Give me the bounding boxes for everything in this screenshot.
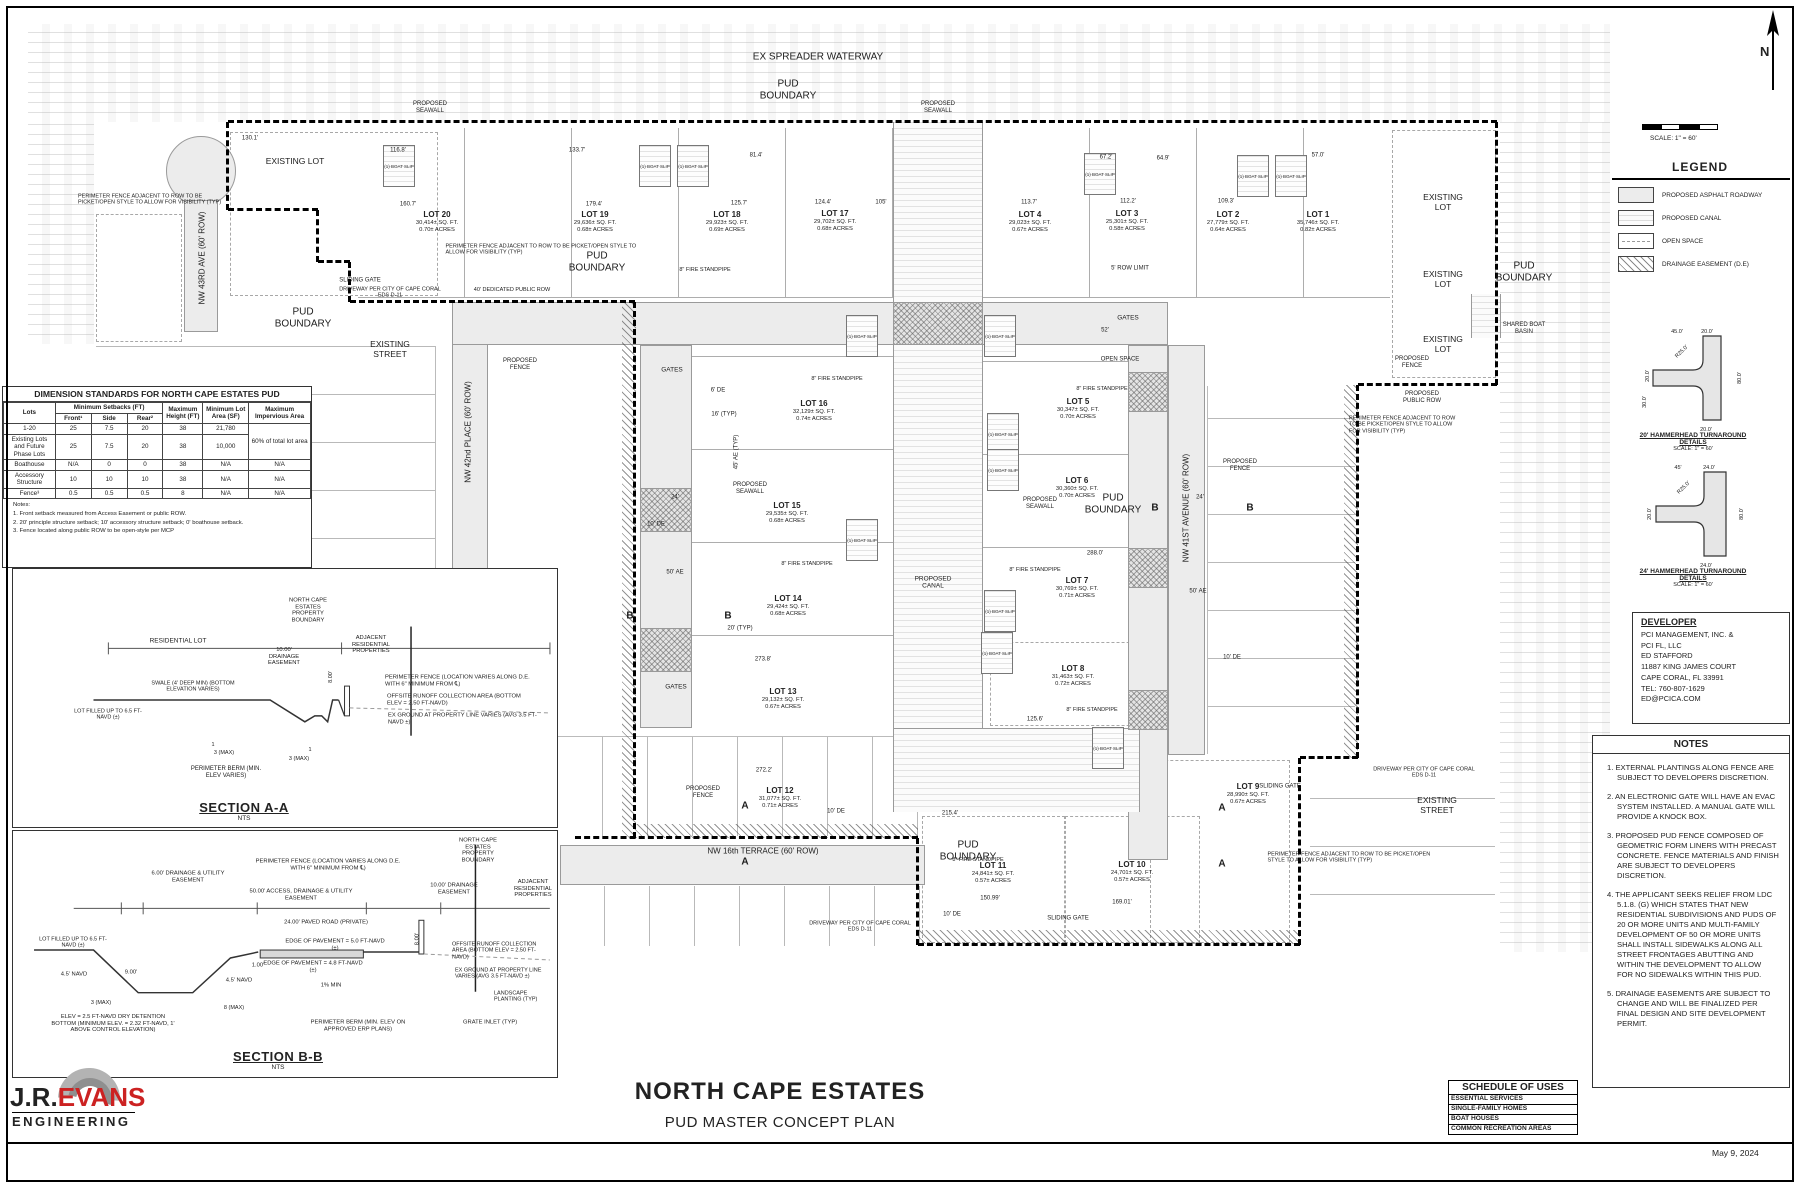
scale-bar xyxy=(1642,124,1718,130)
annotation-slide1: SLIDING GATE xyxy=(339,278,381,285)
section-b-slope3: 3 (MAX) xyxy=(91,1000,111,1006)
scale-label: SCALE: 1" = 60' xyxy=(1650,135,1697,142)
annotation-exst_l: EXISTING STREET xyxy=(363,340,417,360)
developer-line: ED@PCICA.COM xyxy=(1641,694,1789,705)
annotation-gates3: GATES xyxy=(1117,314,1139,321)
pud-boundary-segment xyxy=(1356,385,1359,758)
section-a-offsite: OFFSITE RUNOFF COLLECTION AREA (BOTTOM E… xyxy=(387,693,537,706)
annotation-dm6: 179.4' xyxy=(586,202,602,209)
pud-boundary-segment xyxy=(316,210,319,262)
legend-title: LEGEND xyxy=(1672,160,1728,174)
annotation-dm28: 16' (TYP) xyxy=(711,412,736,419)
legend-item-label: OPEN SPACE xyxy=(1662,238,1703,245)
annotation-dm34: 52' xyxy=(1101,328,1109,335)
lot-label: LOT 1529,535± SQ. FT.0.68± ACRES xyxy=(766,501,808,525)
section-a-residential_lot: RESIDENTIAL LOT xyxy=(150,637,207,644)
annotation-sp5: 8" FIRE STANDPIPE xyxy=(1009,567,1060,573)
section-a-caption: SECTION A-A NTS xyxy=(199,800,289,822)
lot-label: LOT 1632,129± SQ. FT.0.74± ACRES xyxy=(793,399,835,423)
annotation-seaw2: PROPOSED SEAWALL xyxy=(916,101,960,115)
annotation-slide3: SLIDING GATE xyxy=(1259,784,1301,791)
annotation-pud1: PUD BOUNDARY xyxy=(757,79,819,102)
legend-item: OPEN SPACE xyxy=(1618,233,1797,249)
annotation-pud4: PUD BOUNDARY xyxy=(1493,261,1555,284)
pud-boundary-segment xyxy=(1300,756,1358,759)
plan-sheet: LOT 135,746± SQ. FT.0.82± ACRESLOT 227,7… xyxy=(0,0,1800,1188)
lot-label: LOT 831,463± SQ. FT.0.72± ACRES xyxy=(1052,664,1094,688)
notes-items: 1. EXTERNAL PLANTINGS ALONG FENCE ARE SU… xyxy=(1593,763,1789,1029)
project-title: NORTH CAPE ESTATES xyxy=(0,1078,1560,1106)
annotation-sp2: 8" FIRE STANDPIPE xyxy=(811,376,862,382)
section-a-panel: SECTION A-A NTS RESIDENTIAL LOT10.00' DR… xyxy=(12,568,558,828)
annotation-dm16: 273.8' xyxy=(755,657,771,664)
section-b-eop5: EDGE OF PAVEMENT = 5.0 FT-NAVD (±) xyxy=(283,938,387,951)
annotation-dm22: 125.6' xyxy=(1027,717,1043,724)
project-title-wrap: NORTH CAPE ESTATES xyxy=(0,1078,1560,1106)
annotation-dm13: 112.2' xyxy=(1120,199,1136,206)
developer-line: PCI MANAGEMENT, INC. & xyxy=(1641,630,1789,641)
pud-boundary-segment xyxy=(918,943,1300,946)
annotation-pfnote4: PERIMETER FENCE ADJACENT TO ROW TO BE PI… xyxy=(1268,852,1443,865)
section-b-offsite: OFFSITE RUNOFF COLLECTION AREA (BOTTOM E… xyxy=(452,942,540,961)
openspace-swatch xyxy=(1618,233,1654,249)
annotation-gates1: GATES xyxy=(661,366,683,373)
lot-label: LOT 429,023± SQ. FT.0.67± ACRES xyxy=(1009,210,1051,234)
legend-item: PROPOSED CANAL xyxy=(1618,210,1797,226)
section-a-exground: EX GROUND AT PROPERTY LINE VARIES (AVG 3… xyxy=(388,712,538,725)
drainage-swatch xyxy=(1618,256,1654,272)
section-b-paved: 24.00' PAVED ROAD (PRIVATE) xyxy=(281,920,371,927)
section-a-scale: NTS xyxy=(199,815,289,822)
section-b-lot_filled: LOT FILLED UP TO 6.5 FT-NAVD (±) xyxy=(34,937,112,950)
section-a-fence: PERIMETER FENCE (LOCATION VARIES ALONG D… xyxy=(385,674,535,687)
section-a-one1: 1 xyxy=(211,742,214,748)
legend-item: PROPOSED ASPHALT ROADWAY xyxy=(1618,187,1797,203)
annotation-dm11: 67.2' xyxy=(1100,155,1113,162)
section-a-lot_filled: LOT FILLED UP TO 6.5 FT-NAVD (±) xyxy=(72,709,144,722)
canal-swatch xyxy=(1618,210,1654,226)
h20-dim: 80.0' xyxy=(1737,372,1743,384)
logo-evans: EVANS xyxy=(58,1082,146,1112)
annotation-dm10: 113.7' xyxy=(1021,200,1037,207)
developer-title: DEVELOPER xyxy=(1641,617,1789,627)
annotation-dm33: 10' DE xyxy=(827,809,845,816)
h24-subtitle: DETAILS xyxy=(1640,575,1747,582)
annotation-pfnote2: PERIMETER FENCE ADJACENT TO ROW TO BE PI… xyxy=(446,244,651,257)
standards-grid: LotsMinimum Setbacks (FT)Maximum Height … xyxy=(3,402,311,499)
section-b-eop48: EDGE OF PAVEMENT = 4.8 FT-NAVD (±) xyxy=(261,960,365,973)
annotation-dm35: 10' DE xyxy=(1223,655,1241,662)
legend-item-label: DRAINAGE EASEMENT (D.E) xyxy=(1662,261,1749,268)
street-label-st42: NW 42nd PLACE (60' ROW) xyxy=(463,381,472,483)
street-label-st16: NW 16th TERRACE (60' ROW) xyxy=(707,846,818,855)
logo-line1: J.R.EVANS xyxy=(10,1082,145,1113)
boat-slip: (1) BOAT SLIP xyxy=(677,145,709,187)
h20-subtitle: DETAILS xyxy=(1640,439,1747,446)
annotation-pubrow: PROPOSED PUBLIC ROW xyxy=(1398,391,1446,405)
lot-label: LOT 1329,132± SQ. FT.0.67± ACRES xyxy=(762,687,804,711)
annotation-sp1: 8" FIRE STANDPIPE xyxy=(679,267,730,273)
section-a-swale: SWALE (4' DEEP MIN) (BOTTOM ELEVATION VA… xyxy=(151,681,235,694)
section-a-de10: 10.00' DRAINAGE EASEMENT xyxy=(262,647,306,667)
annotation-pfen1: PROPOSED FENCE xyxy=(498,358,542,372)
annotation-pfen2: PROPOSED FENCE xyxy=(681,786,725,800)
h24-scale: SCALE: 1" = 60' xyxy=(1640,582,1747,588)
lot-label: LOT 2030,414± SQ. FT.0.70± ACRES xyxy=(416,210,458,234)
section-a-slope1: 3 (MAX) xyxy=(214,750,234,756)
section-b-grate: GRATE INLET (TYP) xyxy=(463,1020,519,1027)
section-b-exground: EX GROUND AT PROPERTY LINE VARIES (AVG 3… xyxy=(455,968,543,981)
boat-slip: (1) BOAT SLIP xyxy=(1275,155,1307,197)
street-label-st43: NW 43RD AVE (60' ROW) xyxy=(197,212,206,305)
annotation-dm24: 50' AE xyxy=(666,570,683,577)
section-b-title: SECTION B-B xyxy=(233,1049,323,1064)
section-a-title: SECTION A-A xyxy=(199,800,289,815)
logo-engineering: ENGINEERING xyxy=(12,1114,131,1129)
annotation-dm21: 169.01' xyxy=(1112,900,1132,907)
annotation-dm19: 288.0' xyxy=(1087,551,1103,558)
section-b-landscape: LANDSCAPE PLANTING (TYP) xyxy=(494,991,556,1004)
annotation-dm25: 24' xyxy=(671,495,679,502)
annotation-exst_r: EXISTING STREET xyxy=(1410,796,1464,816)
lot-label: LOT 730,769± SQ. FT.0.71± ACRES xyxy=(1056,576,1098,600)
annotation-pfen3: PROPOSED FENCE xyxy=(1390,356,1434,370)
annotation-seaw1: PROPOSED SEAWALL xyxy=(408,101,452,115)
annotation-pfen4: PROPOSED FENCE xyxy=(1218,459,1262,473)
boat-slip: (1) BOAT SLIP xyxy=(846,315,878,357)
annotation-mB3: B xyxy=(1151,502,1158,514)
hammerhead-24-caption: 24' HAMMERHEAD TURNAROUND DETAILS SCALE:… xyxy=(1640,568,1747,588)
lot-label: LOT 1929,636± SQ. FT.0.68± ACRES xyxy=(574,210,616,234)
lot-label: LOT 325,301± SQ. FT.0.58± ACRES xyxy=(1106,209,1148,233)
annotation-mA2: A xyxy=(741,856,748,868)
h24-title: 24' HAMMERHEAD TURNAROUND xyxy=(1640,568,1747,575)
lot-label: LOT 1024,701± SQ. FT.0.57± ACRES xyxy=(1111,860,1153,884)
hammerhead-20-caption: 20' HAMMERHEAD TURNAROUND DETAILS SCALE:… xyxy=(1640,432,1747,452)
annotation-pfnote3: PERIMETER FENCE ADJACENT TO ROW TO BE PI… xyxy=(1349,416,1461,435)
boat-slip: (1) BOAT SLIP xyxy=(984,315,1016,357)
annotation-dm23: 45' AE (TYP) xyxy=(734,435,741,470)
annotation-dm3: 133.7' xyxy=(569,148,585,155)
annotation-dm27: 6' DE xyxy=(711,388,725,395)
street-label-st41: NW 41ST AVENUE (60' ROW) xyxy=(1181,454,1190,562)
sheet-title: PUD MASTER CONCEPT PLAN xyxy=(0,1114,1560,1131)
annotation-dm18: 215.4' xyxy=(942,811,958,818)
annotation-dm9: 105' xyxy=(875,200,886,207)
boat-slip: (1) BOAT SLIP xyxy=(639,145,671,187)
boat-slip: (1) BOAT SLIP xyxy=(981,632,1013,674)
hammerhead-20-detail xyxy=(1645,328,1735,433)
annotation-drive1: DRIVEWAY PER CITY OF CAPE CORAL EDS D-11 xyxy=(339,287,441,300)
pud-boundary-segment xyxy=(226,122,229,210)
developer-line: 11887 KING JAMES COURT xyxy=(1641,662,1789,673)
annotation-mB2: B xyxy=(724,610,731,622)
annotation-gates2: GATES xyxy=(665,683,687,690)
section-b-slope8: 8 (MAX) xyxy=(224,1005,244,1011)
section-a-slope2: 3 (MAX) xyxy=(289,756,309,762)
annotation-dm7: 125.7' xyxy=(731,201,747,208)
pud-boundary-segment xyxy=(575,836,918,839)
annotation-exlot_r1: EXISTING LOT xyxy=(1417,193,1469,213)
annotation-dm1: 130.1' xyxy=(242,136,258,143)
logo-jr: J.R. xyxy=(10,1082,58,1112)
note-item: 1. EXTERNAL PLANTINGS ALONG FENCE ARE SU… xyxy=(1607,763,1779,783)
section-b-pct: 1% MIN xyxy=(321,983,342,990)
annotation-pud5: PUD BOUNDARY xyxy=(1082,493,1144,516)
annotation-dm31: 24' xyxy=(1196,495,1204,502)
annotation-dm8: 124.4' xyxy=(815,200,831,207)
section-b-boundary: NORTH CAPE ESTATES PROPERTY BOUNDARY xyxy=(450,838,506,865)
developer-line: ED STAFFORD xyxy=(1641,651,1789,662)
legend-item: DRAINAGE EASEMENT (D.E) xyxy=(1618,256,1797,272)
section-a-boundary: NORTH CAPE ESTATES PROPERTY BOUNDARY xyxy=(282,598,334,625)
pud-boundary-segment xyxy=(916,838,919,945)
north-arrow: N xyxy=(1758,10,1788,96)
pud-boundary-segment xyxy=(1495,122,1498,385)
annotation-sp6: 8" FIRE STANDPIPE xyxy=(952,857,1003,863)
section-b-navd45b: 4.5' NAVD xyxy=(226,978,252,985)
boat-slip: (1) BOAT SLIP xyxy=(984,590,1016,632)
section-a-one2: 1 xyxy=(308,747,311,753)
h24-dim: 80.0' xyxy=(1739,508,1745,520)
annotation-dm2: 116.8' xyxy=(390,148,406,155)
boat-slip: (1) BOAT SLIP xyxy=(1092,727,1124,769)
annotation-dm14: 109.3' xyxy=(1218,199,1234,206)
note-item: 5. DRAINAGE EASEMENTS ARE SUBJECT TO CHA… xyxy=(1607,989,1779,1029)
lot-label: LOT 1231,077± SQ. FT.0.71± ACRES xyxy=(759,786,801,810)
annotation-dm29: 20' (TYP) xyxy=(727,626,752,633)
note-item: 3. PROPOSED PUD FENCE COMPOSED OF GEOMET… xyxy=(1607,831,1779,881)
legend-rule xyxy=(1612,178,1790,180)
annotation-sp7: 8" FIRE STANDPIPE xyxy=(1066,707,1117,713)
annotation-exlot_r3: EXISTING LOT xyxy=(1417,335,1469,355)
lot-label: LOT 1729,702± SQ. FT.0.68± ACRES xyxy=(814,209,856,233)
annotation-dm12: 64.9' xyxy=(1157,156,1170,163)
annotation-rowlim: 5' ROW LIMIT xyxy=(1111,266,1149,273)
annotation-mB4: B xyxy=(1246,502,1253,514)
annotation-pud3: PUD BOUNDARY xyxy=(272,307,334,330)
annotation-sp4: 8" FIRE STANDPIPE xyxy=(1076,386,1127,392)
lot-label: LOT 530,347± SQ. FT.0.70± ACRES xyxy=(1057,397,1099,421)
annotation-canal_lbl: PROPOSED CANAL xyxy=(910,576,956,591)
firm-logo: J.R.EVANS ENGINEERING xyxy=(10,1074,185,1138)
lot-label: LOT 1829,923± SQ. FT.0.69± ACRES xyxy=(706,210,748,234)
roadway-swatch xyxy=(1618,187,1654,203)
notes-box: NOTES 1. EXTERNAL PLANTINGS ALONG FENCE … xyxy=(1592,735,1790,1088)
section-a-berm: PERIMETER BERM (MIN. ELEV VARIES) xyxy=(186,766,266,780)
annotation-open1: OPEN SPACE xyxy=(1101,357,1140,364)
section-b-adjacent: ADJACENT RESIDENTIAL PROPERTIES xyxy=(507,879,559,899)
pud-boundary-segment xyxy=(350,300,635,303)
titleblock-rule xyxy=(8,1142,1792,1144)
annotation-mA1: A xyxy=(741,800,748,812)
annotation-exlot_tl: EXISTING LOT xyxy=(266,157,325,167)
note-item: 2. AN ELECTRONIC GATE WILL HAVE AN EVAC … xyxy=(1607,792,1779,822)
pud-boundary-segment xyxy=(318,260,350,263)
section-b-de10: 10.00' DRAINAGE EASEMENT xyxy=(426,882,482,895)
annotation-dedrow: 40' DEDICATED PUBLIC ROW xyxy=(471,287,553,293)
section-b-caption: SECTION B-B NTS xyxy=(233,1049,323,1071)
annotation-dm26: 10' DE xyxy=(647,522,665,529)
annotation-exlot_r2: EXISTING LOT xyxy=(1417,270,1469,290)
section-b-panel: SECTION B-B NTS LOT FILLED UP TO 6.5 FT-… xyxy=(12,830,558,1078)
hammerhead-24-detail xyxy=(1648,464,1738,569)
standards-notes: Notes:1. Front setback measured from Acc… xyxy=(3,499,311,537)
section-b-de6: 6.00' DRAINAGE & UTILITY EASEMENT xyxy=(145,870,231,883)
boat-slip: (1) BOAT SLIP xyxy=(846,519,878,561)
annotation-dm4: 81.4' xyxy=(750,153,763,160)
legend-item-label: PROPOSED ASPHALT ROADWAY xyxy=(1662,192,1762,199)
pud-boundary-segment xyxy=(1358,383,1497,386)
section-b-berm: PERIMETER BERM (MIN. ELEV ON APPROVED ER… xyxy=(303,1019,413,1032)
note-item: 4. THE APPLICANT SEEKS RELIEF FROM LDC 5… xyxy=(1607,890,1779,980)
annotation-drive3: DRIVEWAY PER CITY OF CAPE CORAL EDS D-11 xyxy=(809,921,911,934)
h20-scale: SCALE: 1" = 60' xyxy=(1640,446,1747,452)
annotation-sp3: 8" FIRE STANDPIPE xyxy=(781,561,832,567)
boat-slip: (1) BOAT SLIP xyxy=(987,449,1019,491)
pud-boundary-segment xyxy=(228,120,1497,123)
dimension-standards-table: DIMENSION STANDARDS FOR NORTH CAPE ESTAT… xyxy=(2,386,312,568)
annotation-waterway: EX SPREADER WATERWAY xyxy=(753,51,883,63)
standards-title: DIMENSION STANDARDS FOR NORTH CAPE ESTAT… xyxy=(3,387,311,402)
north-label: N xyxy=(1760,44,1769,59)
annotation-dm5: 160.7' xyxy=(400,202,416,209)
annotation-dm20: 150.99' xyxy=(980,896,1000,903)
annotation-mA3: A xyxy=(1218,802,1225,814)
annotation-drive2: DRIVEWAY PER CITY OF CAPE CORAL EDS D-11 xyxy=(1373,767,1475,780)
developer-line: TEL: 760-807-1629 xyxy=(1641,684,1789,695)
developer-line: PCI FL, LLC xyxy=(1641,641,1789,652)
pud-boundary-segment xyxy=(228,208,318,211)
annotation-mB1: B xyxy=(626,610,633,622)
h20-title: 20' HAMMERHEAD TURNAROUND xyxy=(1640,432,1747,439)
lot-label: LOT 1429,424± SQ. FT.0.68± ACRES xyxy=(767,594,809,618)
annotation-basin: SHARED BOAT BASIN xyxy=(1502,322,1546,336)
section-a-d8: 8.00' xyxy=(328,671,334,683)
developer-line: CAPE CORAL, FL 33991 xyxy=(1641,673,1789,684)
section-b-d900: 9.00' xyxy=(125,970,137,977)
annotation-seaw4: PROPOSED SEAWALL xyxy=(1018,497,1062,511)
annotation-slide2: SLIDING GATE xyxy=(1047,916,1089,923)
pud-boundary-segment xyxy=(633,302,636,838)
lot-label: LOT 135,746± SQ. FT.0.82± ACRES xyxy=(1297,210,1339,234)
annotation-dm30: 50' AE xyxy=(1189,589,1206,596)
annotation-mA4: A xyxy=(1218,858,1225,870)
annotation-dm15: 57.0' xyxy=(1312,153,1325,160)
boat-slip: (1) BOAT SLIP xyxy=(1237,155,1269,197)
developer-lines: PCI MANAGEMENT, INC. &PCI FL, LLCED STAF… xyxy=(1633,630,1789,705)
annotation-pfnote1: PERIMETER FENCE ADJACENT TO ROW TO BE PI… xyxy=(78,194,226,207)
annotation-dm32: 10' DE xyxy=(943,912,961,919)
developer-box: DEVELOPER PCI MANAGEMENT, INC. &PCI FL, … xyxy=(1632,612,1790,724)
section-b-ade50: 50.00' ACCESS, DRAINAGE & UTILITY EASEME… xyxy=(246,888,356,901)
sheet-date: May 9, 2024 xyxy=(1712,1148,1759,1158)
annotation-dm17: 272.2' xyxy=(756,768,772,775)
annotation-seaw3: PROPOSED SEAWALL xyxy=(728,482,772,496)
section-b-d800: 8.00' xyxy=(415,933,422,945)
legend-items: PROPOSED ASPHALT ROADWAYPROPOSED CANALOP… xyxy=(1612,180,1797,279)
section-b-detention: ELEV = 2.5 FT-NAVD DRY DETENTION BOTTOM … xyxy=(48,1014,178,1034)
lot-label: LOT 227,779± SQ. FT.0.64± ACRES xyxy=(1207,210,1249,234)
section-b-scale: NTS xyxy=(233,1064,323,1071)
lot-label: LOT 1124,841± SQ. FT.0.57± ACRES xyxy=(972,861,1014,885)
section-a-adjacent: ADJACENT RESIDENTIAL PROPERTIES xyxy=(345,635,397,655)
section-b-fence: PERIMETER FENCE (LOCATION VARIES ALONG D… xyxy=(253,858,403,871)
notes-title: NOTES xyxy=(1593,736,1789,754)
section-b-navd45a: 4.5' NAVD xyxy=(61,972,87,979)
legend-item-label: PROPOSED CANAL xyxy=(1662,215,1721,222)
